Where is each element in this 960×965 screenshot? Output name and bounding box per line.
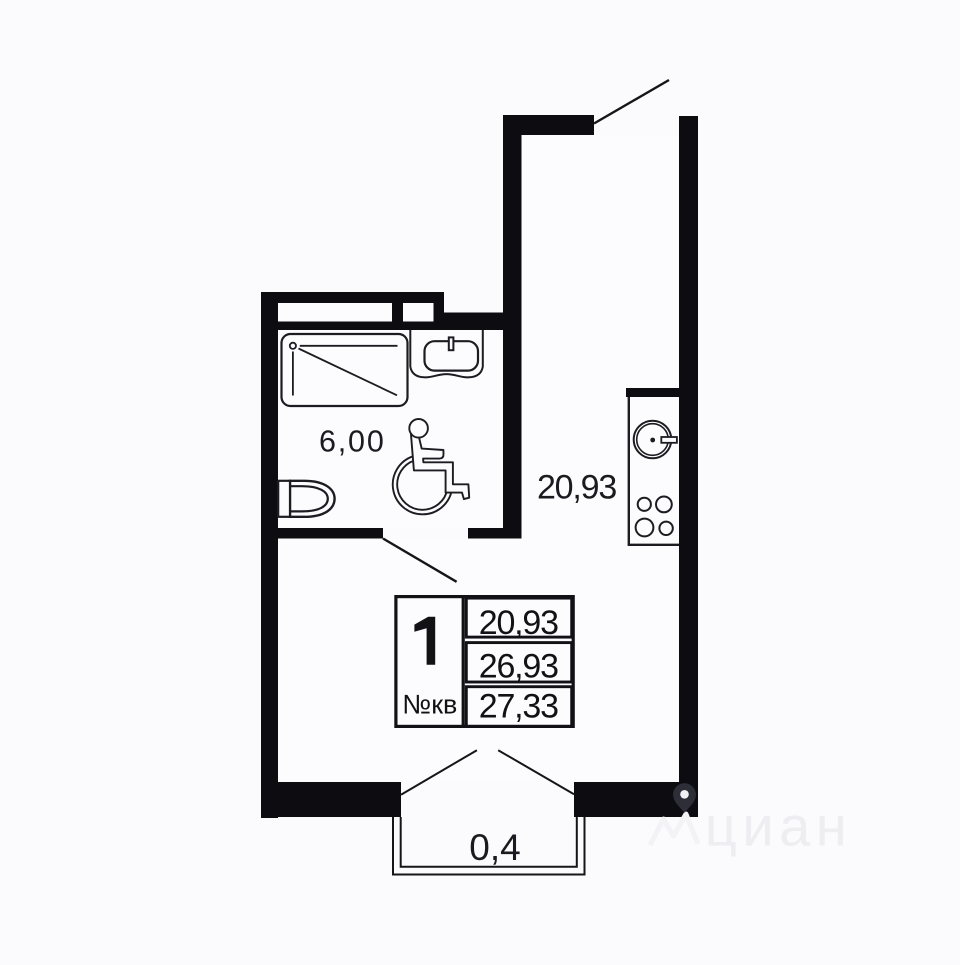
svg-text:27,33: 27,33 [479, 688, 558, 726]
svg-text:20,93: 20,93 [537, 468, 616, 506]
svg-text:циан: циан [705, 795, 852, 858]
svg-text:6,00: 6,00 [319, 425, 386, 459]
svg-text:20,93: 20,93 [479, 604, 558, 642]
svg-text:26,93: 26,93 [479, 647, 558, 685]
svg-text:0,4: 0,4 [469, 827, 520, 868]
svg-text:№кв: №кв [402, 689, 457, 719]
